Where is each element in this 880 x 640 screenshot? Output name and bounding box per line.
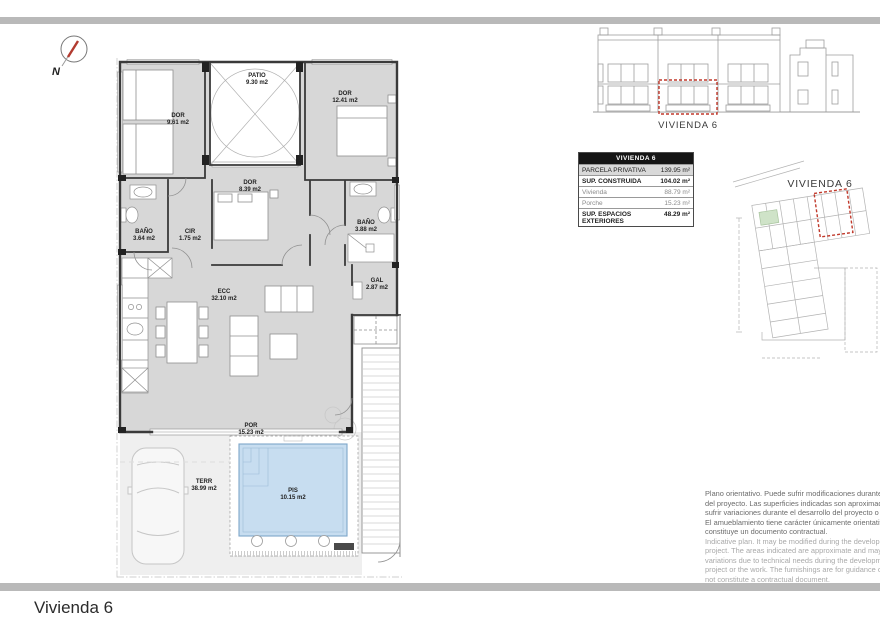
page-title: Vivienda 6	[34, 598, 113, 618]
room-terr-name: TERR	[196, 479, 213, 485]
room-bano1-name: BAÑO	[135, 228, 153, 235]
site-plan-label: VIVIENDA 6	[787, 178, 852, 190]
areas-table: VIVIENDA 6 PARCELA PRIVATIVA 139.95 m² S…	[578, 152, 694, 227]
room-cir-area: 1.75 m2	[179, 236, 202, 242]
row-value: 48.29 m²	[664, 211, 690, 225]
disclaimer-line-en: project or the work. The furnishings are…	[705, 565, 880, 575]
row-label: SUP. CONSTRUIDA	[582, 178, 641, 185]
room-dor3-name: DOR	[243, 180, 257, 186]
disclaimer-line-es: sufrir variaciones durante el desarrollo…	[705, 508, 880, 518]
room-dor1-name: DOR	[171, 113, 185, 119]
disclaimer-line-en: project. The areas indicated are approxi…	[705, 546, 880, 556]
disclaimer-line-en: Indicative plan. It may be modified duri…	[705, 537, 880, 547]
room-dor3-area: 8.39 m2	[239, 187, 262, 193]
disclaimer-line-en: variations due to technical needs during…	[705, 556, 880, 566]
row-label: Vivienda	[582, 189, 607, 196]
brochure-page: N	[0, 0, 880, 640]
room-dor2-name: DOR	[338, 91, 352, 97]
row-value: 104.02 m²	[660, 178, 690, 185]
table-row: SUP. ESPACIOS EXTERIORES 48.29 m²	[579, 208, 693, 226]
north-arrow-icon: N	[52, 36, 87, 78]
table-row: Vivienda 88.79 m²	[579, 186, 693, 197]
areas-table-header: VIVIENDA 6	[579, 153, 693, 164]
room-patio-area: 9.30 m2	[246, 80, 269, 86]
room-patio-name: PATIO	[248, 73, 266, 79]
elevation-label: VIVIENDA 6	[658, 120, 718, 131]
site-plan-drawing	[733, 161, 880, 358]
row-value: 15.23 m²	[664, 200, 690, 207]
row-value: 88.79 m²	[664, 189, 690, 196]
side-stairs	[362, 348, 400, 553]
row-label: SUP. ESPACIOS EXTERIORES	[582, 211, 664, 225]
disclaimer: Plano orientativo. Puede sufrir modifica…	[705, 489, 880, 584]
room-por-area: 15.23 m2	[238, 430, 264, 436]
closet	[354, 316, 397, 344]
room-ecc-area: 32.10 m2	[211, 296, 237, 302]
table-row: SUP. CONSTRUIDA 104.02 m²	[579, 175, 693, 186]
room-ecc-name: ECC	[218, 289, 231, 295]
gal-appliance	[353, 282, 362, 299]
disclaimer-line-es: Plano orientativo. Puede sufrir modifica…	[705, 489, 880, 499]
bed-dor2	[337, 95, 396, 166]
room-gal-area: 2.87 m2	[366, 285, 389, 291]
room-por-name: POR	[244, 423, 258, 429]
elevation-drawing	[593, 28, 860, 112]
dining-table	[156, 302, 208, 363]
room-bano2-area: 3.88 m2	[355, 227, 378, 233]
room-terr-area: 38.99 m2	[191, 486, 217, 492]
bottom-divider	[0, 583, 880, 591]
pool	[239, 436, 347, 536]
room-pis-area: 10.15 m2	[280, 495, 306, 501]
room-bano2-name: BAÑO	[357, 219, 375, 226]
room-pis-name: PIS	[288, 488, 298, 494]
disclaimer-line-es: del proyecto. Las superficies indicadas …	[705, 499, 880, 509]
room-bano1-area: 3.64 m2	[133, 236, 156, 242]
table-row: Porche 15.23 m²	[579, 197, 693, 208]
disclaimer-line-es: constituye un documento contractual.	[705, 527, 880, 537]
table-row: PARCELA PRIVATIVA 139.95 m²	[579, 164, 693, 175]
north-label: N	[52, 66, 61, 78]
bed-dor3	[214, 190, 278, 240]
disclaimer-line-es: El amueblamiento tiene carácter únicamen…	[705, 518, 880, 528]
room-dor1-area: 9.61 m2	[167, 120, 190, 126]
room-cir-name: CIR	[185, 229, 196, 235]
row-label: Porche	[582, 200, 603, 207]
room-gal-name: GAL	[371, 278, 384, 284]
row-label: PARCELA PRIVATIVA	[582, 167, 646, 174]
site-plan-unit-highlight	[814, 189, 853, 237]
row-value: 139.95 m²	[661, 167, 690, 174]
room-dor2-area: 12.41 m2	[332, 98, 358, 104]
